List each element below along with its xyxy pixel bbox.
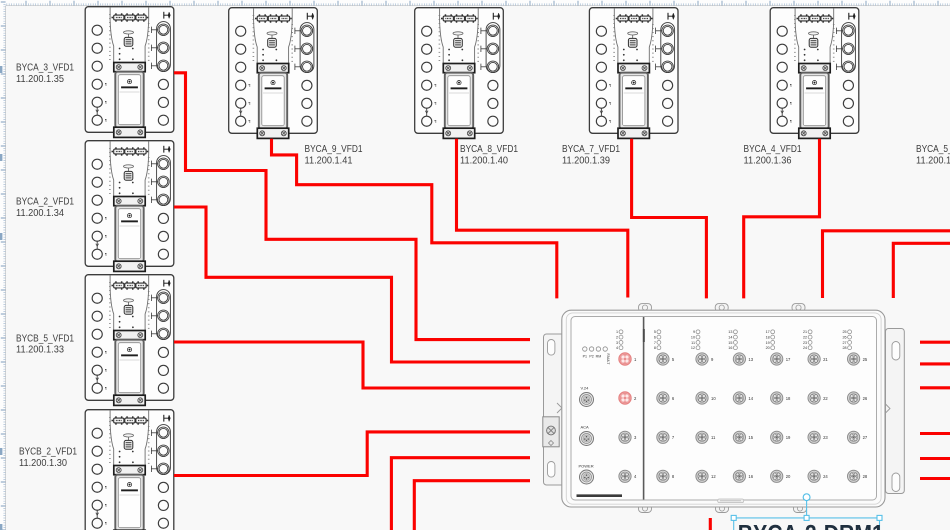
svg-text:21: 21 — [823, 357, 828, 362]
svg-text:18: 18 — [766, 336, 770, 340]
svg-text:15: 15 — [748, 435, 753, 440]
svg-text:24: 24 — [803, 346, 807, 350]
svg-text:12: 12 — [711, 474, 716, 479]
svg-text:26: 26 — [842, 336, 846, 340]
svg-text:11.200.1.30: 11.200.1.30 — [19, 457, 67, 469]
svg-text:28: 28 — [842, 346, 846, 350]
svg-text:10: 10 — [691, 336, 695, 340]
svg-text:BYCA_3_VFD1: BYCA_3_VFD1 — [16, 62, 74, 74]
svg-text:BYCA_4_VFD1: BYCA_4_VFD1 — [744, 143, 802, 155]
svg-text:27: 27 — [842, 341, 846, 345]
svg-text:17: 17 — [786, 357, 791, 362]
svg-text:FAULT: FAULT — [606, 354, 610, 366]
svg-text:5: 5 — [654, 330, 656, 334]
svg-text:14: 14 — [728, 336, 732, 340]
svg-text:20: 20 — [766, 346, 770, 350]
svg-text:12: 12 — [691, 346, 695, 350]
svg-text:11: 11 — [691, 341, 695, 345]
svg-text:V.24: V.24 — [581, 386, 590, 391]
svg-text:24: 24 — [823, 474, 828, 479]
svg-text:11.200.1.37: 11.200.1.37 — [916, 154, 950, 166]
svg-text:BYCA_8_VFD1: BYCA_8_VFD1 — [460, 143, 518, 155]
svg-text:11.200.1.35: 11.200.1.35 — [16, 73, 64, 85]
svg-text:BYCA_9_VFD1: BYCA_9_VFD1 — [305, 143, 363, 155]
svg-text:16: 16 — [728, 346, 732, 350]
svg-text:BYCA_7_VFD1: BYCA_7_VFD1 — [562, 143, 620, 155]
svg-text:11: 11 — [711, 435, 716, 440]
svg-text:27: 27 — [863, 435, 868, 440]
svg-text:13: 13 — [728, 330, 732, 334]
svg-text:P1: P1 — [583, 355, 587, 359]
svg-text:BYCB_5_VFD1: BYCB_5_VFD1 — [16, 332, 74, 344]
svg-text:28: 28 — [863, 474, 868, 479]
svg-text:ACA: ACA — [581, 425, 590, 430]
svg-text:22: 22 — [803, 336, 807, 340]
svg-text:2: 2 — [616, 336, 618, 340]
svg-text:22: 22 — [823, 396, 828, 401]
svg-text:19: 19 — [786, 435, 791, 440]
svg-text:23: 23 — [823, 435, 828, 440]
svg-text:4: 4 — [616, 346, 618, 350]
svg-text:21: 21 — [803, 330, 807, 334]
svg-text:17: 17 — [766, 330, 770, 334]
svg-text:6: 6 — [654, 336, 656, 340]
svg-text:15: 15 — [728, 341, 732, 345]
svg-text:7: 7 — [654, 341, 656, 345]
svg-text:20: 20 — [786, 474, 791, 479]
svg-text:11.200.1.34: 11.200.1.34 — [16, 207, 64, 219]
svg-text:RM: RM — [596, 355, 602, 359]
svg-text:11.200.1.33: 11.200.1.33 — [16, 344, 64, 356]
svg-text:BYCA_2_VFD1: BYCA_2_VFD1 — [16, 196, 74, 208]
svg-text:14: 14 — [748, 396, 753, 401]
svg-text:11.200.1.36: 11.200.1.36 — [744, 154, 792, 166]
svg-text:BYCA-2-DRM1: BYCA-2-DRM1 — [738, 521, 884, 530]
svg-text:P2: P2 — [589, 355, 593, 359]
svg-text:18: 18 — [786, 396, 791, 401]
svg-text:23: 23 — [803, 341, 807, 345]
svg-text:8: 8 — [654, 346, 656, 350]
svg-text:11.200.1.39: 11.200.1.39 — [562, 154, 610, 166]
svg-text:9: 9 — [693, 330, 695, 334]
svg-text:19: 19 — [766, 341, 770, 345]
svg-text:16: 16 — [748, 474, 753, 479]
svg-text:11.200.1.41: 11.200.1.41 — [305, 154, 353, 166]
svg-text:25: 25 — [863, 357, 868, 362]
svg-text:1: 1 — [616, 330, 618, 334]
svg-text:25: 25 — [842, 330, 846, 334]
svg-text:POWER: POWER — [579, 464, 594, 469]
svg-text:13: 13 — [748, 357, 753, 362]
svg-text:BYCA_5_VFD1: BYCA_5_VFD1 — [916, 143, 950, 155]
svg-text:3: 3 — [616, 341, 618, 345]
svg-text:26: 26 — [863, 396, 868, 401]
svg-text:11.200.1.40: 11.200.1.40 — [460, 154, 508, 166]
svg-text:BYCB_2_VFD1: BYCB_2_VFD1 — [19, 446, 77, 458]
svg-text:10: 10 — [711, 396, 716, 401]
